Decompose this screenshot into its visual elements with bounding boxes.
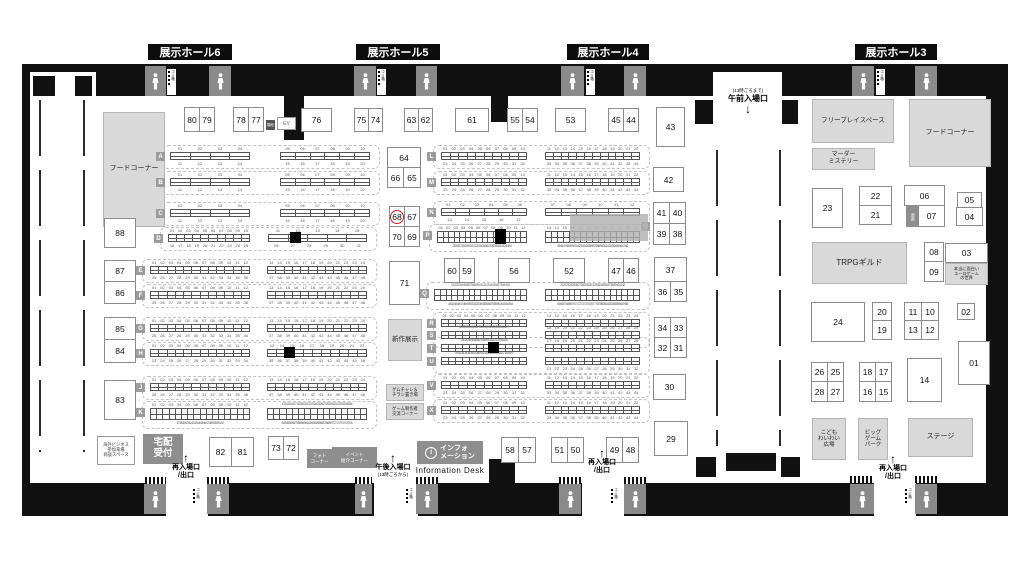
pillar	[782, 72, 798, 96]
reentry-exit-1: ↑ 再入場口 /出口	[164, 452, 208, 480]
booth-numbers: 010203040506	[441, 202, 527, 207]
booth-number: 45	[611, 115, 620, 125]
restroom-icon	[144, 484, 166, 514]
closed-booth-marker	[290, 232, 301, 243]
row-letter-V: V	[427, 381, 436, 390]
booth-78: 78	[233, 107, 249, 132]
booth-table-strip	[267, 266, 367, 274]
booth-numbers: 151617181920	[280, 218, 370, 223]
booth-numbers: 010203040506070809101112	[150, 260, 250, 265]
booth-08: 08	[924, 242, 944, 262]
booth-number: 79	[202, 115, 211, 125]
booth-36: 36	[654, 281, 671, 302]
booth-number: 68	[390, 210, 404, 224]
pillar	[696, 457, 716, 477]
booth-table-strip	[267, 324, 367, 332]
booth-number: 50	[571, 445, 580, 455]
booth-12: 12	[921, 320, 939, 340]
booth-47: 47	[608, 258, 624, 283]
booth-number: 33	[674, 323, 683, 333]
booth-numbers: 4546474849505152535455565758596061626364…	[545, 244, 640, 249]
booth-table-strip	[280, 152, 370, 160]
free-play-space: フリープレイスペース	[812, 99, 894, 143]
booth-table-strip	[150, 266, 250, 274]
restroom-icon	[416, 66, 437, 96]
booth-number: 21	[871, 210, 880, 220]
restroom-icon	[850, 484, 874, 514]
booth-table-strip	[150, 291, 250, 299]
booth-numbers: 13141516171819202122	[267, 343, 367, 348]
restroom-icon	[561, 66, 584, 96]
booth-number: 83	[115, 395, 124, 405]
booth-43: 43	[656, 107, 685, 147]
booth-30: 30	[653, 374, 686, 400]
booth-numbers: 01020304	[170, 203, 250, 208]
game-creators-corner: ゲーム制作者 交流コーナー	[386, 403, 424, 420]
booth-number: 23	[823, 203, 832, 213]
booth-table-strip	[150, 408, 250, 420]
booth-45: 45	[608, 108, 624, 132]
booth-number: 74	[371, 115, 380, 125]
booth-60: 60	[444, 258, 460, 283]
booth-number: 28	[815, 387, 824, 397]
booth-numbers: 2526272829303132333435363738394041424344	[437, 244, 527, 249]
door-threshold	[207, 477, 229, 484]
booth-21: 21	[859, 205, 892, 225]
booth-15: 15	[875, 381, 892, 402]
door-threshold	[416, 477, 438, 484]
booth-52: 52	[553, 258, 585, 283]
booth-01: 01	[958, 341, 990, 385]
booth-numbers: 01020304050607080910	[441, 172, 527, 177]
overseas-business-space: 海外ビジネス 参加来場 商談スペース	[97, 436, 135, 465]
booth-10: 10	[921, 302, 939, 321]
booth-61: 61	[455, 108, 489, 132]
booth-number: 25	[831, 367, 840, 377]
pillar	[726, 453, 776, 471]
booth-number: 06	[920, 191, 929, 201]
hall-label-4: 展示ホール4	[567, 44, 649, 60]
booth-numbers: 0102030405060708091011121314151617181920	[441, 351, 527, 356]
booth-numbers: 23242526272829303132	[441, 390, 527, 395]
booth-number: 36	[658, 287, 667, 297]
booth-32: 32	[654, 337, 671, 358]
booth-table-strip	[170, 209, 250, 217]
row-letter-Q: Q	[420, 289, 429, 298]
trash-bin-icon: ゴミ箱	[904, 487, 913, 513]
booth-number: 65	[407, 173, 416, 183]
row-letter-F: F	[136, 291, 145, 300]
euro-games-world: 本当に面白い ユーロゲーム の世界	[945, 263, 988, 285]
trash-bin-icon: ゴミ箱	[377, 69, 386, 95]
booth-number: 08	[929, 247, 938, 257]
booth-number: 15	[879, 387, 888, 397]
reentry-exit-2: ↑ 再入場口 /出口	[580, 447, 624, 475]
booth-numbers: 111213141516171819202122	[545, 146, 640, 151]
booth-75: 75	[354, 108, 369, 132]
row-letter-U: U	[427, 357, 436, 366]
booth-number: 72	[286, 443, 295, 453]
booth-24: 24	[811, 302, 865, 342]
booth-number: 40	[673, 208, 682, 218]
booth-numbers: 373839404142434445464748	[267, 392, 367, 397]
booth-table-strip	[170, 178, 250, 186]
booth-numbers: 4344454647484950515253545556575859606162…	[434, 302, 527, 307]
pillar	[782, 100, 798, 124]
stage: ステージ	[908, 418, 973, 457]
booth-17: 17	[875, 362, 892, 382]
booth-39: 39	[653, 223, 670, 245]
trpg-guild: TRPGギルド	[812, 242, 907, 284]
booth-83: 83	[104, 380, 136, 420]
booth-number: 85	[115, 324, 124, 334]
booth-86: 86	[104, 281, 136, 304]
booth-number: 78	[236, 115, 245, 125]
booth-number: 75	[357, 115, 366, 125]
door-threshold	[145, 477, 166, 484]
booth-19: 19	[872, 320, 892, 340]
arrow-up-icon: ↑	[183, 452, 189, 464]
booth-numbers: 070809101112	[545, 202, 640, 207]
booth-number: 30	[665, 382, 674, 392]
booth-56: 56	[498, 258, 530, 283]
booth-number: 86	[115, 288, 124, 298]
booth-03: 03	[945, 243, 988, 263]
arrow-up-icon: ↑	[890, 453, 896, 465]
pillar	[491, 74, 508, 122]
door-threshold	[915, 476, 937, 483]
booth-28: 28	[811, 381, 828, 402]
booth-table-strip	[267, 291, 367, 299]
booth-numbers: 5354555657585960616263646566676869707172…	[267, 421, 367, 426]
booth-85: 85	[104, 317, 136, 340]
row-o-closed-area	[570, 214, 648, 241]
queue-lane-line	[716, 150, 718, 446]
booth-numbers: 11121314	[170, 161, 250, 166]
booth-07: 07	[918, 205, 945, 227]
booth-22: 22	[859, 186, 892, 206]
booth-table-strip	[441, 178, 527, 186]
murder-mystery: マーダー ミステリー	[812, 148, 875, 170]
booth-numbers: 01020304	[170, 146, 250, 151]
row-letter-L: L	[427, 152, 436, 161]
closed-booth-marker	[495, 229, 506, 244]
booth-number: 77	[251, 115, 260, 125]
booth-42: 42	[653, 167, 684, 192]
booth-37: 37	[654, 257, 687, 282]
booth-numbers: 252627282930313233343536	[150, 275, 250, 280]
booth-14: 14	[907, 358, 942, 402]
booth-numbers: 262728293031	[268, 243, 367, 248]
row-letter-R: R	[427, 319, 436, 328]
door-threshold	[624, 477, 646, 484]
booth-68: 68	[389, 206, 405, 227]
booth-number: 39	[657, 229, 666, 239]
restroom-icon	[624, 66, 646, 96]
elevator-icon: EV	[277, 117, 296, 130]
booth-number: 63	[407, 115, 416, 125]
booth-20: 20	[872, 302, 892, 321]
booth-numbers: 11121314	[170, 218, 250, 223]
booth-80: 80	[184, 107, 200, 132]
pillar	[75, 76, 92, 96]
pillar	[695, 72, 713, 96]
booth-table-strip	[280, 209, 370, 217]
booth-06: 06	[904, 185, 945, 206]
booth-26: 26	[811, 362, 828, 382]
booth-number: 62	[421, 115, 430, 125]
hall-label-6: 展示ホール6	[148, 44, 232, 60]
hall-label-5: 展示ホール5	[356, 44, 440, 60]
restroom-icon	[207, 484, 229, 514]
row-letter-B: B	[156, 178, 165, 187]
booth-table-strip	[267, 408, 367, 420]
booth-number: 57	[522, 445, 531, 455]
booth-number: 24	[833, 317, 842, 327]
booth-table-strip	[267, 383, 367, 391]
booth-63: 63	[404, 108, 419, 132]
booth-number: 16	[863, 387, 872, 397]
booth-numbers: 0102030405060708091011121314151617181920	[434, 283, 527, 288]
booth-numbers: 37383940414243444546474849505152	[150, 421, 250, 426]
booth-numbers: 333435363738394041424344	[545, 161, 640, 166]
booth-numbers: 373839404142434445464748	[267, 333, 367, 338]
booth-number: 20	[877, 307, 886, 317]
trash-bin-icon: ゴミ箱	[610, 487, 619, 513]
booth-65: 65	[403, 167, 421, 188]
row-letter-C: C	[156, 209, 165, 218]
row-letter-M: M	[427, 178, 436, 187]
booth-number: 18	[863, 367, 872, 377]
booth-53: 53	[555, 108, 586, 132]
booth-table-strip	[441, 406, 527, 414]
booth-number: 82	[216, 447, 225, 457]
booth-59: 59	[459, 258, 475, 283]
booth-number: 05	[965, 195, 974, 205]
booth-number: 43	[666, 122, 675, 132]
booth-23: 23	[812, 188, 843, 228]
booth-number: 42	[664, 175, 673, 185]
restroom-icon	[416, 484, 438, 514]
restroom-icon	[355, 484, 372, 514]
booth-number: 46	[626, 266, 635, 276]
booth-numbers: 23242526272829303132	[441, 415, 527, 420]
booth-number: 32	[658, 343, 667, 353]
booth-77: 77	[248, 107, 264, 132]
booth-51: 51	[551, 437, 568, 463]
booth-number: 60	[447, 266, 456, 276]
queue-lane-line	[39, 100, 41, 452]
booth-number: 44	[626, 115, 635, 125]
booth-numbers: 171819202122232425262728	[545, 338, 640, 343]
restroom-icon	[915, 484, 937, 514]
booth-number: 48	[626, 445, 635, 455]
booth-numbers: 353637383940414243444546	[267, 358, 367, 363]
door-threshold	[559, 477, 581, 484]
booth-table-strip	[434, 289, 527, 301]
trash-bin-icon: ゴミ箱	[586, 69, 595, 95]
restroom-icon	[145, 66, 166, 96]
booth-number: 31	[674, 343, 683, 353]
booth-numbers: 252627282930313233343536	[150, 333, 250, 338]
booth-numbers: 151617181920	[280, 187, 370, 192]
booth-number: 61	[467, 115, 476, 125]
booth-numbers: 181920212223242526272829	[545, 325, 640, 330]
booth-number: 71	[400, 278, 409, 288]
information-desk: i インフォ メーション	[417, 441, 483, 464]
booth-numbers: 01020304050607080910	[441, 375, 527, 380]
booth-numbers: 252627282930313233343536	[150, 300, 250, 305]
row-letter-J: J	[136, 383, 145, 392]
booth-number: 51	[555, 445, 564, 455]
booth-table-strip	[545, 357, 640, 365]
restroom-icon	[559, 484, 581, 514]
pillar	[695, 100, 713, 124]
kids-plaza: こども わいわい 広場	[812, 418, 846, 460]
booth-numbers: 050607080910	[280, 172, 370, 177]
booth-25: 25	[827, 362, 844, 382]
booth-74: 74	[368, 108, 383, 132]
new-works-exhibit: 新作展示	[388, 319, 422, 361]
booth-number: 56	[509, 266, 518, 276]
booth-numbers: 373839404142434445464748	[267, 275, 367, 280]
booth-81: 81	[231, 437, 254, 467]
wall	[22, 64, 30, 516]
booth-76: 76	[301, 108, 332, 132]
booth-numbers: 1112131415	[268, 228, 367, 233]
row-letter-D: D	[154, 234, 163, 243]
booth-numbers: 131415161718192021222324	[267, 318, 367, 323]
booth-16: 16	[859, 381, 876, 402]
booth-table-strip	[545, 178, 640, 186]
entrance-label: 午後入場口	[376, 464, 411, 472]
booth-73: 73	[268, 436, 284, 460]
booth-number: 27	[831, 387, 840, 397]
booth-number: 13	[908, 325, 917, 335]
booth-67: 67	[404, 206, 420, 227]
booth-numbers: 333435363738394041424344	[545, 187, 640, 192]
pillar	[781, 457, 800, 477]
booth-number: 84	[115, 346, 124, 356]
booth-number: 73	[271, 443, 280, 453]
booth-38: 38	[669, 223, 686, 245]
booth-numbers: 6566676869707172737475767778798081828384…	[545, 302, 640, 307]
queue-lane-line	[83, 100, 85, 452]
booth-table-strip	[170, 152, 250, 160]
booth-82: 82	[209, 437, 232, 467]
row-letter-K: K	[136, 408, 145, 417]
booth-table-strip	[441, 152, 527, 160]
booth-numbers: 252627282930313233343536	[150, 392, 250, 397]
booth-numbers: 010203040506070809101112	[150, 377, 250, 382]
booth-numbers: 01020304050607080910	[441, 146, 527, 151]
entrance-label: 再入場口 /出口	[588, 459, 616, 475]
booth-number: 53	[566, 115, 575, 125]
restroom-icon	[354, 66, 376, 96]
wall	[790, 64, 986, 96]
booth-79: 79	[199, 107, 215, 132]
booth-numbers: 111213141516171819202122	[545, 400, 640, 405]
booth-numbers: 111213141516171819202122	[545, 375, 640, 380]
booth-numbers: 131415161718192021222324	[267, 260, 367, 265]
booth-number: 34	[658, 323, 667, 333]
booth-number: 64	[399, 153, 408, 163]
booth-35: 35	[670, 281, 687, 302]
restroom-icon	[915, 66, 937, 96]
door-threshold	[355, 477, 372, 484]
booth-48: 48	[622, 437, 639, 463]
booth-number: 35	[674, 287, 683, 297]
booth-number: 09	[929, 267, 938, 277]
booth-table-strip	[545, 381, 640, 389]
booth-numbers: 23242526272829303132	[441, 161, 527, 166]
booth-number: 69	[407, 232, 416, 242]
booth-13: 13	[904, 320, 922, 340]
booth-table-strip	[441, 208, 527, 216]
booth-number: 12	[925, 325, 934, 335]
trash-bin-icon: ゴミ箱	[876, 69, 885, 95]
booth-number: 22	[871, 191, 880, 201]
booth-41: 41	[653, 202, 670, 224]
booth-table-strip	[437, 231, 527, 243]
row-letter-E: E	[136, 266, 145, 275]
booth-18: 18	[859, 362, 876, 382]
row-letter-G: G	[136, 324, 145, 333]
entrance-afternoon: ↑ 午後入場口 (13時ごろから)	[368, 452, 418, 478]
booth-numbers: 151617181920	[280, 161, 370, 166]
booth-57: 57	[518, 437, 536, 463]
booth-table-strip	[441, 381, 527, 389]
booth-88: 88	[104, 218, 136, 248]
booth-table-strip	[168, 234, 250, 242]
booth-number: 67	[407, 212, 416, 222]
entrance-label: 再入場口 /出口	[879, 465, 907, 481]
row-letter-S: S	[427, 331, 436, 340]
booth-number: 14	[920, 375, 929, 385]
booth-number: 41	[657, 208, 666, 218]
booth-numbers: 01020304050607080910	[168, 228, 250, 233]
booth-table-strip	[150, 383, 250, 391]
trash-bin-icon: ゴミ箱	[405, 487, 414, 513]
exit-gap	[166, 483, 208, 516]
booth-number: 19	[877, 325, 886, 335]
information-desk-subtitle: Information Desk	[413, 466, 487, 475]
booth-numbers: 010203040506070809101112	[437, 225, 527, 230]
booth-numbers: 111213141516171819202122	[545, 172, 640, 177]
trash-bin-icon: ゴミ箱	[192, 487, 201, 513]
row-letter-X: X	[427, 406, 436, 415]
booth-table-strip	[545, 289, 640, 301]
booth-number: 59	[462, 266, 471, 276]
closed-booth-marker	[488, 342, 499, 353]
photo-corner: フォト コーナー	[307, 449, 332, 468]
arrow-up-icon: ↑	[390, 452, 396, 464]
booth-55: 55	[507, 108, 523, 132]
booth-numbers: 01020304050607080910111213141516	[441, 338, 527, 343]
booth-number: 11	[909, 307, 918, 317]
booth-number: 76	[312, 115, 321, 125]
booth-table-strip	[267, 349, 367, 357]
booth-02: 02	[957, 303, 975, 320]
entrance-morning: (13時ごろまで) 午前入場口 ↓	[712, 88, 784, 115]
row-letter-A: A	[156, 152, 165, 161]
queue-lane-line	[779, 150, 781, 446]
booth-09: 09	[924, 261, 944, 282]
booth-number: 80	[187, 115, 196, 125]
booth-numbers: 2122232425262728293031323334353637383940…	[545, 283, 640, 288]
booth-table-strip	[268, 234, 367, 242]
booth-58: 58	[501, 437, 519, 463]
